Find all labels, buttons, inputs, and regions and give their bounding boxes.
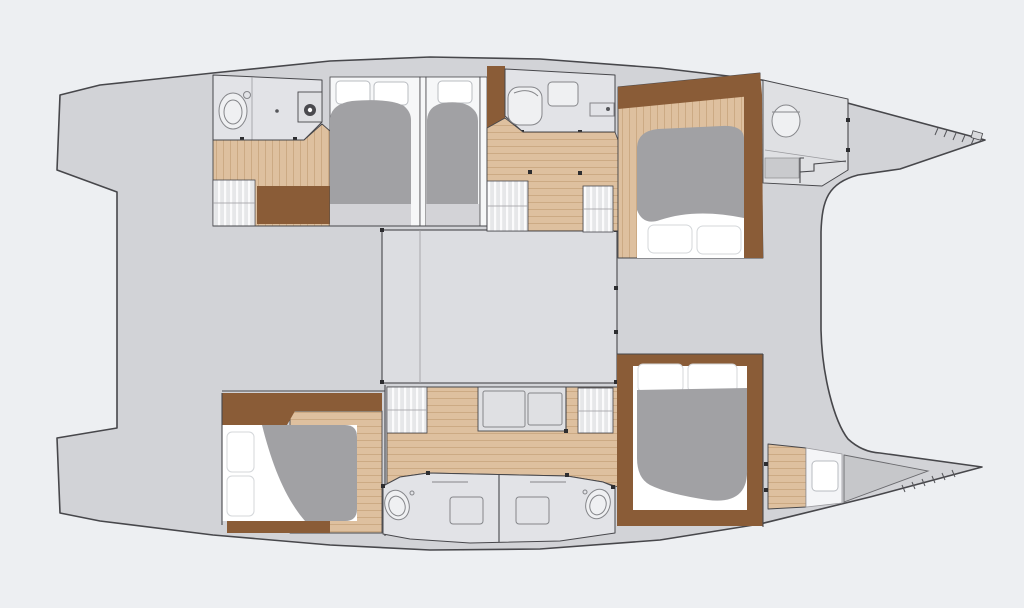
berth-head-board — [617, 354, 763, 366]
pillow — [697, 226, 741, 254]
door-post — [764, 488, 768, 492]
door-post — [528, 170, 532, 174]
bridge-deck — [380, 228, 618, 384]
pillow — [688, 364, 737, 392]
pillow — [648, 225, 692, 253]
starboard-forward-cabin — [617, 354, 763, 527]
shower-drain-icon — [275, 109, 279, 113]
galley-unit — [478, 387, 568, 433]
cabin-divider-wall — [420, 77, 426, 226]
door-post — [846, 118, 850, 122]
door-post — [611, 485, 615, 489]
door-post — [764, 462, 768, 466]
companionway-steps — [578, 388, 613, 433]
port-forward-cabin — [618, 73, 763, 258]
door-post — [614, 286, 618, 290]
sink-faucet — [308, 108, 312, 112]
saloon-footprint — [382, 230, 617, 383]
galley-counter — [478, 387, 566, 431]
port-aft-bathroom — [213, 75, 322, 141]
berth-side-board — [617, 354, 633, 526]
double-berth — [330, 100, 411, 204]
wash-basin-icon — [772, 105, 800, 137]
deck-hatch — [812, 461, 838, 491]
berth-foot-bench — [426, 204, 480, 226]
locker-hatch — [765, 158, 799, 178]
shower-tray — [548, 82, 578, 106]
door-post — [565, 473, 569, 477]
door-post — [578, 171, 582, 175]
door-post — [846, 148, 850, 152]
floor-plan-canvas — [0, 0, 1024, 608]
floor-plan-page — [0, 0, 1024, 608]
pillow — [227, 432, 254, 472]
cabin-divider-wall — [480, 77, 487, 226]
door-post — [381, 484, 385, 488]
berth-foot-bench — [330, 204, 411, 226]
berth-foot-board — [227, 521, 330, 533]
pillow — [227, 476, 254, 516]
bathroom-cabinet — [487, 66, 505, 128]
pillow — [638, 364, 683, 392]
double-berth — [637, 126, 744, 222]
berth-side-board — [744, 95, 763, 258]
aft-cabinet — [257, 186, 330, 224]
door-post — [426, 471, 430, 475]
single-berth — [427, 102, 478, 204]
berth-foot-board — [622, 510, 763, 526]
door-post — [380, 380, 384, 384]
berth-side-board — [747, 354, 763, 526]
double-berth — [637, 388, 747, 501]
door-post — [564, 429, 568, 433]
port-mid-cabin — [426, 77, 480, 226]
door-post — [380, 228, 384, 232]
port-aft-cabin-1 — [330, 77, 420, 226]
shower-icon — [508, 87, 542, 125]
hull-window — [438, 81, 472, 103]
sink-faucet — [606, 107, 610, 111]
bow-wood-floor — [768, 444, 806, 509]
starboard-aft-cabin — [222, 385, 385, 536]
door-post — [614, 330, 618, 334]
starboard-bathrooms — [381, 471, 615, 543]
